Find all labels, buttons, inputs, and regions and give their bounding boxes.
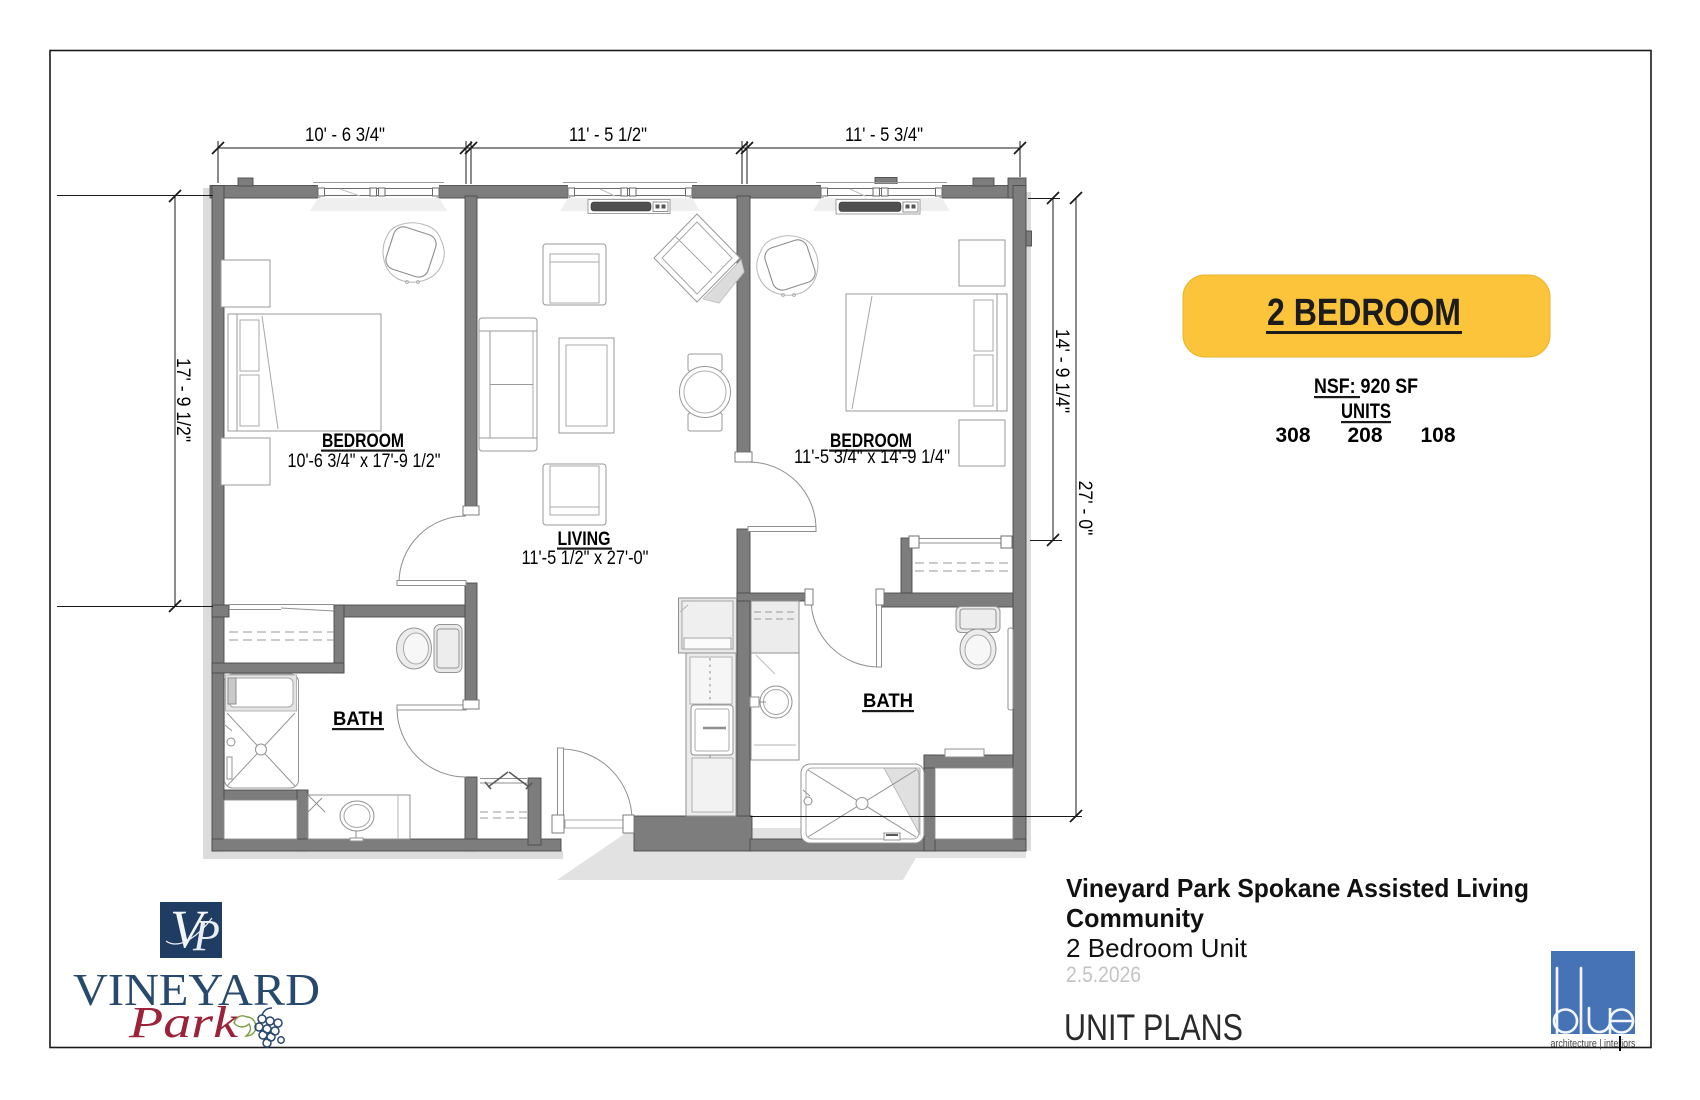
svg-text:LIVING: LIVING xyxy=(558,528,611,550)
svg-text:UNITS: UNITS xyxy=(1341,400,1391,423)
svg-text:Vineyard Park Spokane Assisted: Vineyard Park Spokane Assisted Living xyxy=(1066,873,1529,903)
svg-text:11'-5 3/4" x 14'-9 1/4": 11'-5 3/4" x 14'-9 1/4" xyxy=(794,447,950,468)
svg-text:BATH: BATH xyxy=(333,708,383,730)
svg-text:BEDROOM: BEDROOM xyxy=(322,430,404,452)
svg-text:10'-6 3/4" x 17'-9 1/2": 10'-6 3/4" x 17'-9 1/2" xyxy=(288,451,441,472)
svg-text:308: 308 xyxy=(1276,424,1311,447)
svg-text:208: 208 xyxy=(1348,424,1383,447)
svg-text:11' - 5 1/2": 11' - 5 1/2" xyxy=(569,125,647,146)
svg-text:BATH: BATH xyxy=(863,690,913,712)
svg-text:UNIT PLANS: UNIT PLANS xyxy=(1064,1007,1243,1048)
svg-text:10' - 6 3/4": 10' - 6 3/4" xyxy=(305,125,385,146)
svg-text:108: 108 xyxy=(1421,424,1456,447)
svg-text:2 Bedroom Unit: 2 Bedroom Unit xyxy=(1066,933,1248,963)
svg-text:architecture | interiors: architecture | interiors xyxy=(1551,1038,1636,1050)
svg-text:2 BEDROOM: 2 BEDROOM xyxy=(1267,292,1461,334)
svg-text:14' - 9 1/4": 14' - 9 1/4" xyxy=(1052,329,1074,413)
svg-text:11' - 5 3/4": 11' - 5 3/4" xyxy=(845,125,923,146)
svg-text:17' - 9 1/2": 17' - 9 1/2" xyxy=(173,358,195,442)
svg-text:27' - 0": 27' - 0" xyxy=(1075,481,1097,536)
svg-text:NSF: 920 SF: NSF: 920 SF xyxy=(1314,375,1418,398)
svg-text:2.5.2026: 2.5.2026 xyxy=(1066,962,1141,987)
svg-text:11'-5 1/2" x 27'-0": 11'-5 1/2" x 27'-0" xyxy=(522,548,649,569)
svg-text:Park: Park xyxy=(128,998,240,1047)
svg-text:Community: Community xyxy=(1066,903,1205,933)
